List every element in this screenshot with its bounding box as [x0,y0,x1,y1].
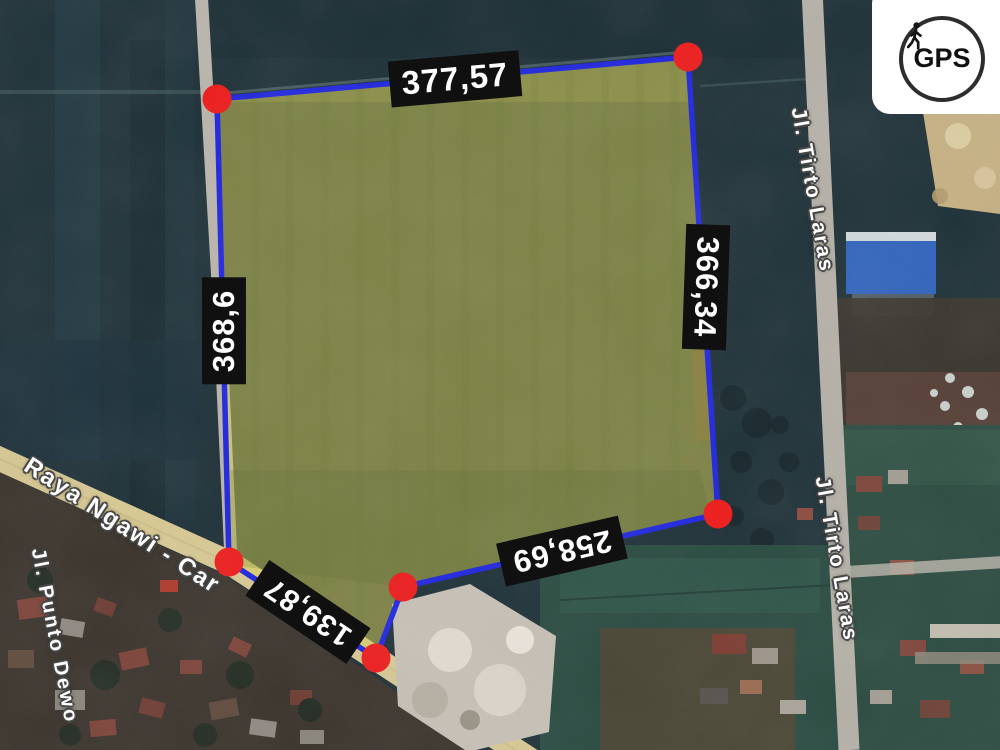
measurement-label-left: 368,6 [202,278,246,385]
gps-badge-circle: GPS [899,16,985,102]
gps-badge-card: GPS [872,0,1000,114]
walking-person-icon [903,22,929,50]
satellite-map-viewport: 377,57 368,6 366,34 258,69 139,87 Raya N… [0,0,1000,750]
measurement-label-right: 366,34 [682,224,730,350]
